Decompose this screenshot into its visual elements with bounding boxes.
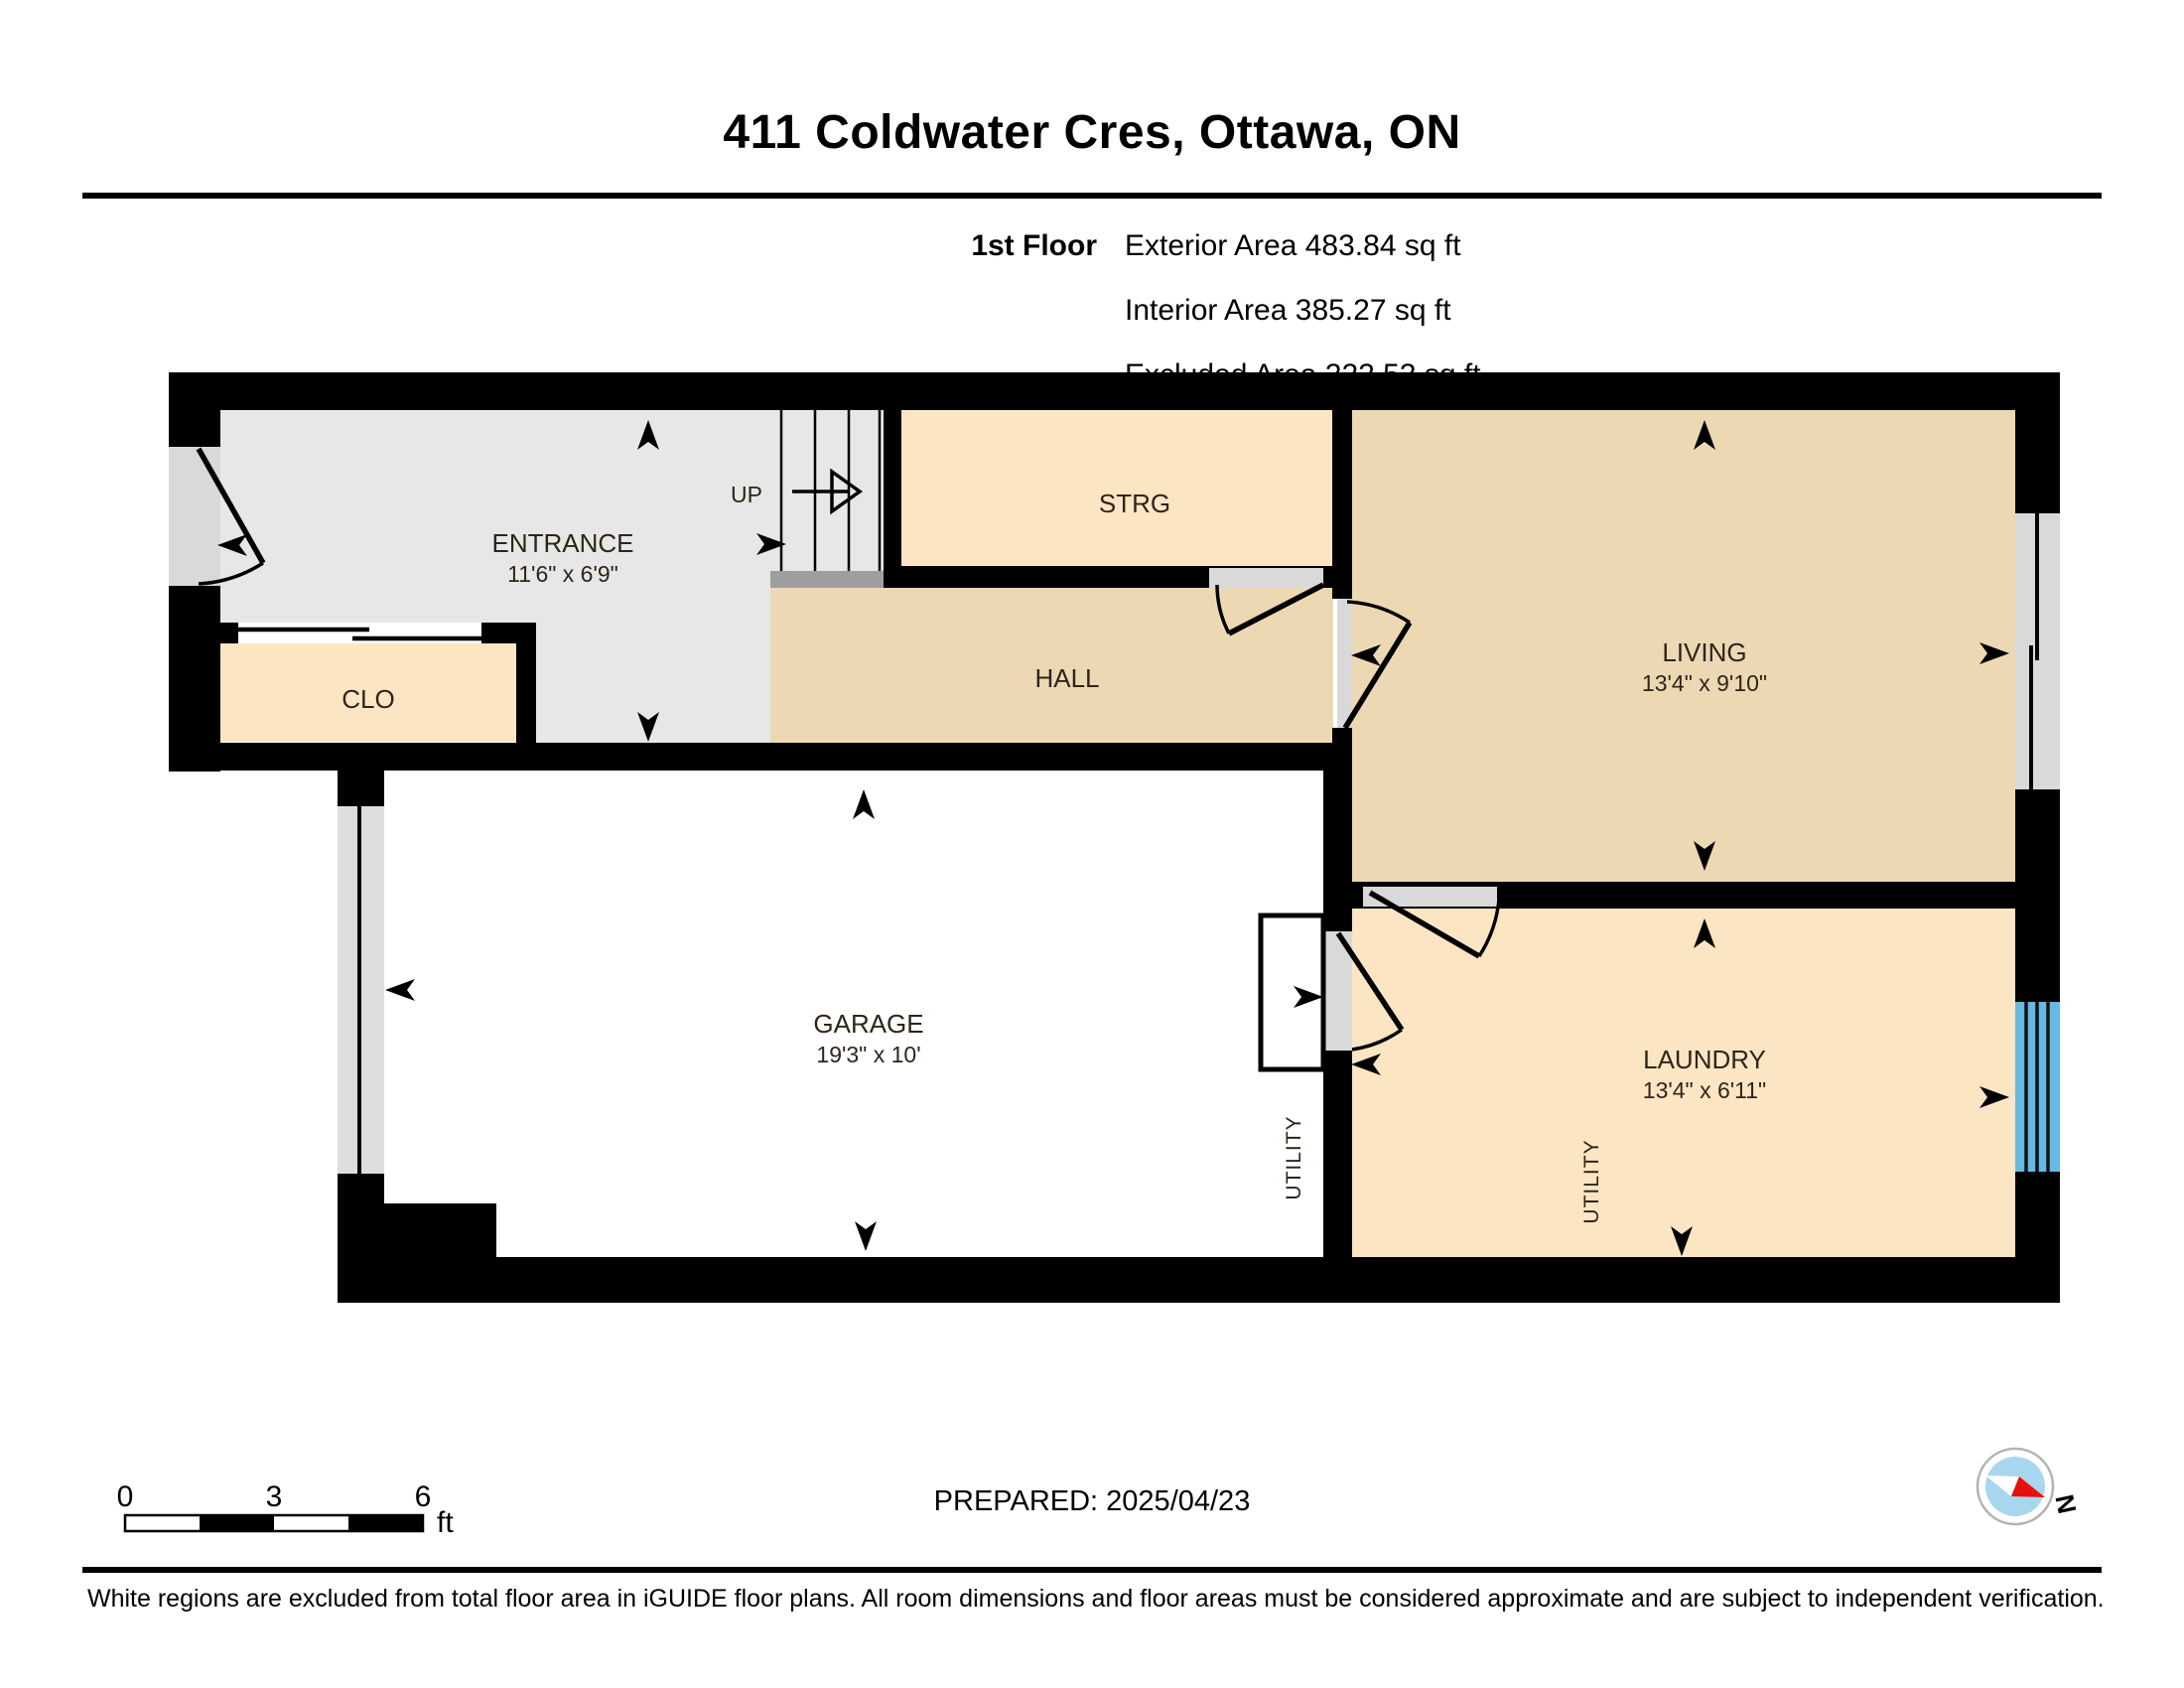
wall-segment [2015,789,2060,1002]
wall-segment [2015,1172,2060,1257]
utility-label-laundry: UTILITY [1580,1139,1603,1223]
living-label: LIVING [1662,637,1746,667]
stair-landing [770,571,884,588]
prepared-date: PREPARED: 2025/04/23 [0,1485,2184,1518]
garage-door [338,806,384,1174]
wall-segment [1323,743,1352,931]
wall-segment [516,643,536,743]
wall-segment [169,372,2060,410]
front-door-recess [169,447,220,586]
entrance-label: ENTRANCE [491,528,633,558]
entrance-floor-lower [220,588,536,623]
footer-rule [82,1567,2102,1573]
floors [220,410,2015,1257]
wall-segment [338,1257,2060,1303]
laundry-label: LAUNDRY [1643,1045,1766,1074]
wall-segment [169,586,220,623]
garage-label: GARAGE [813,1009,923,1039]
wall-segment [481,623,536,643]
floor-plan-drawing: ENTRANCE 11'6" x 6'9" CLO UP STRG HALL L… [0,0,2184,1688]
storage-label: STRG [1099,489,1170,518]
storage-door-threshold [1209,568,1323,588]
hall-label: HALL [1034,663,1099,693]
laundry-dims: 13'4" x 6'11" [1643,1077,1766,1103]
entrance-floor [220,410,781,588]
wall-segment [884,410,901,588]
wall-segment [1332,728,1352,743]
closet-sliding-doors [238,630,483,638]
closet-label: CLO [341,684,394,714]
floor-plan-page: { "header": { "title": "411 Coldwater Cr… [0,0,2184,1688]
wall-segment [338,771,384,806]
stairs-up-label: UP [731,482,762,507]
wall-segment [1323,1051,1352,1257]
living-dims: 13'4" x 9'10" [1642,670,1767,696]
wall-segment [2015,410,2060,513]
wall-segment [169,410,220,447]
entrance-dims: 11'6" x 6'9" [507,561,618,587]
disclaimer-text: White regions are excluded from total fl… [87,1585,2105,1614]
garage-dims: 19'3" x 10' [816,1042,920,1067]
wall-segment [169,623,238,643]
wall-segment [1332,410,1352,599]
utility-label-garage: UTILITY [1283,1115,1305,1199]
living-door-threshold [1337,599,1352,728]
utility-appliance [1261,915,1323,1069]
laundry-door-threshold [1363,887,1497,907]
wall-segment [169,743,1352,771]
